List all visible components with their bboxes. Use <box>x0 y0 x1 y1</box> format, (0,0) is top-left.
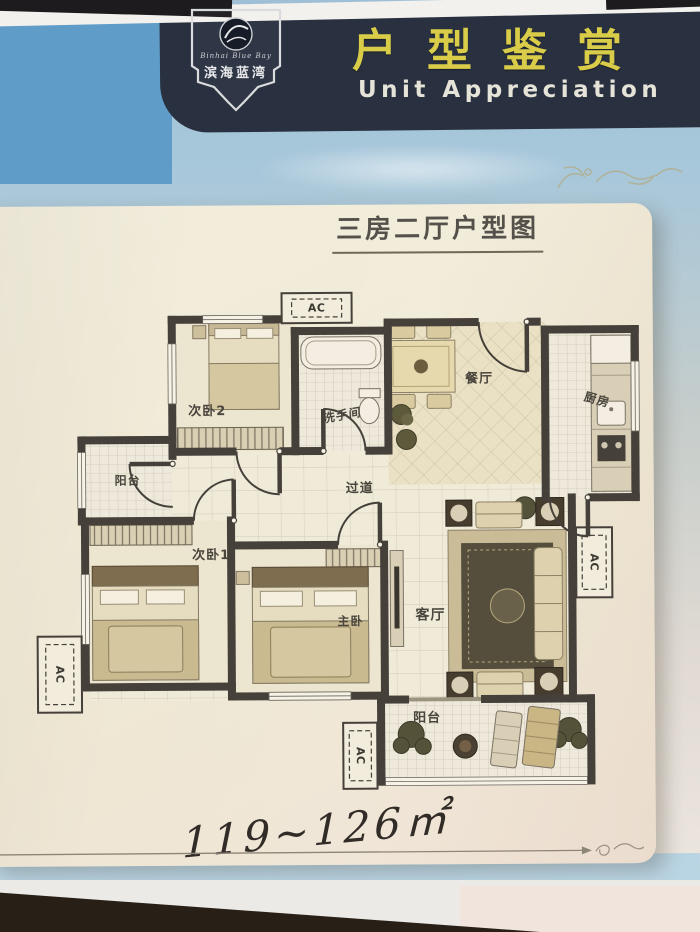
scroll-ornament-icon <box>596 844 644 856</box>
ac-label-top: AC <box>308 301 326 314</box>
plan-type-title: 三房二厅户型图 <box>332 208 543 254</box>
ac-label-right: AC <box>588 553 601 571</box>
room-label-master-bedroom: 主卧 <box>337 612 363 629</box>
ac-label-bottom: AC <box>354 747 367 765</box>
floorplan: 次卧2 洗手间 餐厅 厨房 阳台 过道 次卧1 主卧 客厅 阳台 AC AC A… <box>26 281 649 805</box>
blue-side-panel <box>0 20 172 184</box>
room-label-living-room: 客厅 <box>415 604 445 624</box>
page-bottom-right <box>460 886 700 932</box>
room-label-bedroom-2: 次卧2 <box>188 400 226 419</box>
brand-script-name: Binhai Blue Bay <box>186 52 286 60</box>
floorplan-card: 三房二厅户型图 <box>0 203 656 867</box>
page-title: 户型鉴赏 <box>352 14 652 79</box>
page-subtitle: Unit Appreciation <box>358 77 662 103</box>
room-label-balcony-bottom: 阳台 <box>413 707 441 726</box>
arrow-icon <box>582 846 592 854</box>
room-label-bedroom-1: 次卧1 <box>192 544 230 563</box>
gold-scroll-ornament-icon <box>552 142 700 206</box>
brand-badge: Binhai Blue Bay 滨海蓝湾 <box>186 8 286 112</box>
badge-shield-icon <box>186 8 286 112</box>
cloud-decoration <box>250 144 580 194</box>
brand-name: 滨海蓝湾 <box>186 62 286 81</box>
brochure-photo: Binhai Blue Bay 滨海蓝湾 户型鉴赏 Unit Appreciat… <box>0 0 700 932</box>
floorplan-drawing <box>26 281 649 805</box>
room-label-balcony-left: 阳台 <box>115 472 141 489</box>
card-divider-rule <box>0 837 644 867</box>
room-label-corridor: 过道 <box>346 477 374 496</box>
room-label-dining-room: 餐厅 <box>465 367 493 386</box>
ac-label-left: AC <box>53 666 66 684</box>
badge-emblem-icon <box>220 18 252 50</box>
